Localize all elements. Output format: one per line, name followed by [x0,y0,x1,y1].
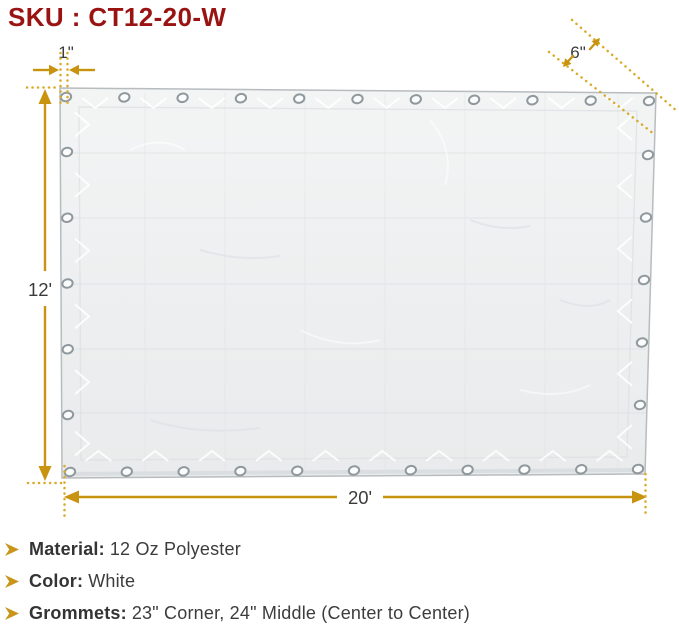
height-label: 12' [28,279,52,300]
spec-grommets: Grommets:23" Corner, 24" Middle (Center … [5,597,470,629]
spec-label: Grommets: [29,603,127,623]
arrow-bullet-icon [5,543,19,556]
width-label: 20' [348,487,372,508]
tarp-diagram: 12' 20' 1" 6" [0,0,679,617]
spec-value: White [88,571,135,591]
corner-arrow-up [586,35,603,53]
tarp [60,88,656,478]
spec-text: Grommets:23" Corner, 24" Middle (Center … [29,603,470,624]
corner-spacing-label: 6" [570,43,586,62]
spec-value: 12 Oz Polyester [110,539,241,559]
spec-text: Material:12 Oz Polyester [29,539,241,560]
spec-list: Material:12 Oz Polyester Color:White Gro… [5,533,470,629]
dim-height: 12' [27,88,60,482]
arrow-bullet-icon [5,607,19,620]
spec-text: Color:White [29,571,135,592]
spec-material: Material:12 Oz Polyester [5,533,470,565]
spec-color: Color:White [5,565,470,597]
spec-value: 23" Corner, 24" Middle (Center to Center… [132,603,470,623]
spec-label: Color: [29,571,83,591]
spec-label: Material: [29,539,105,559]
arrow-bullet-icon [5,575,19,588]
